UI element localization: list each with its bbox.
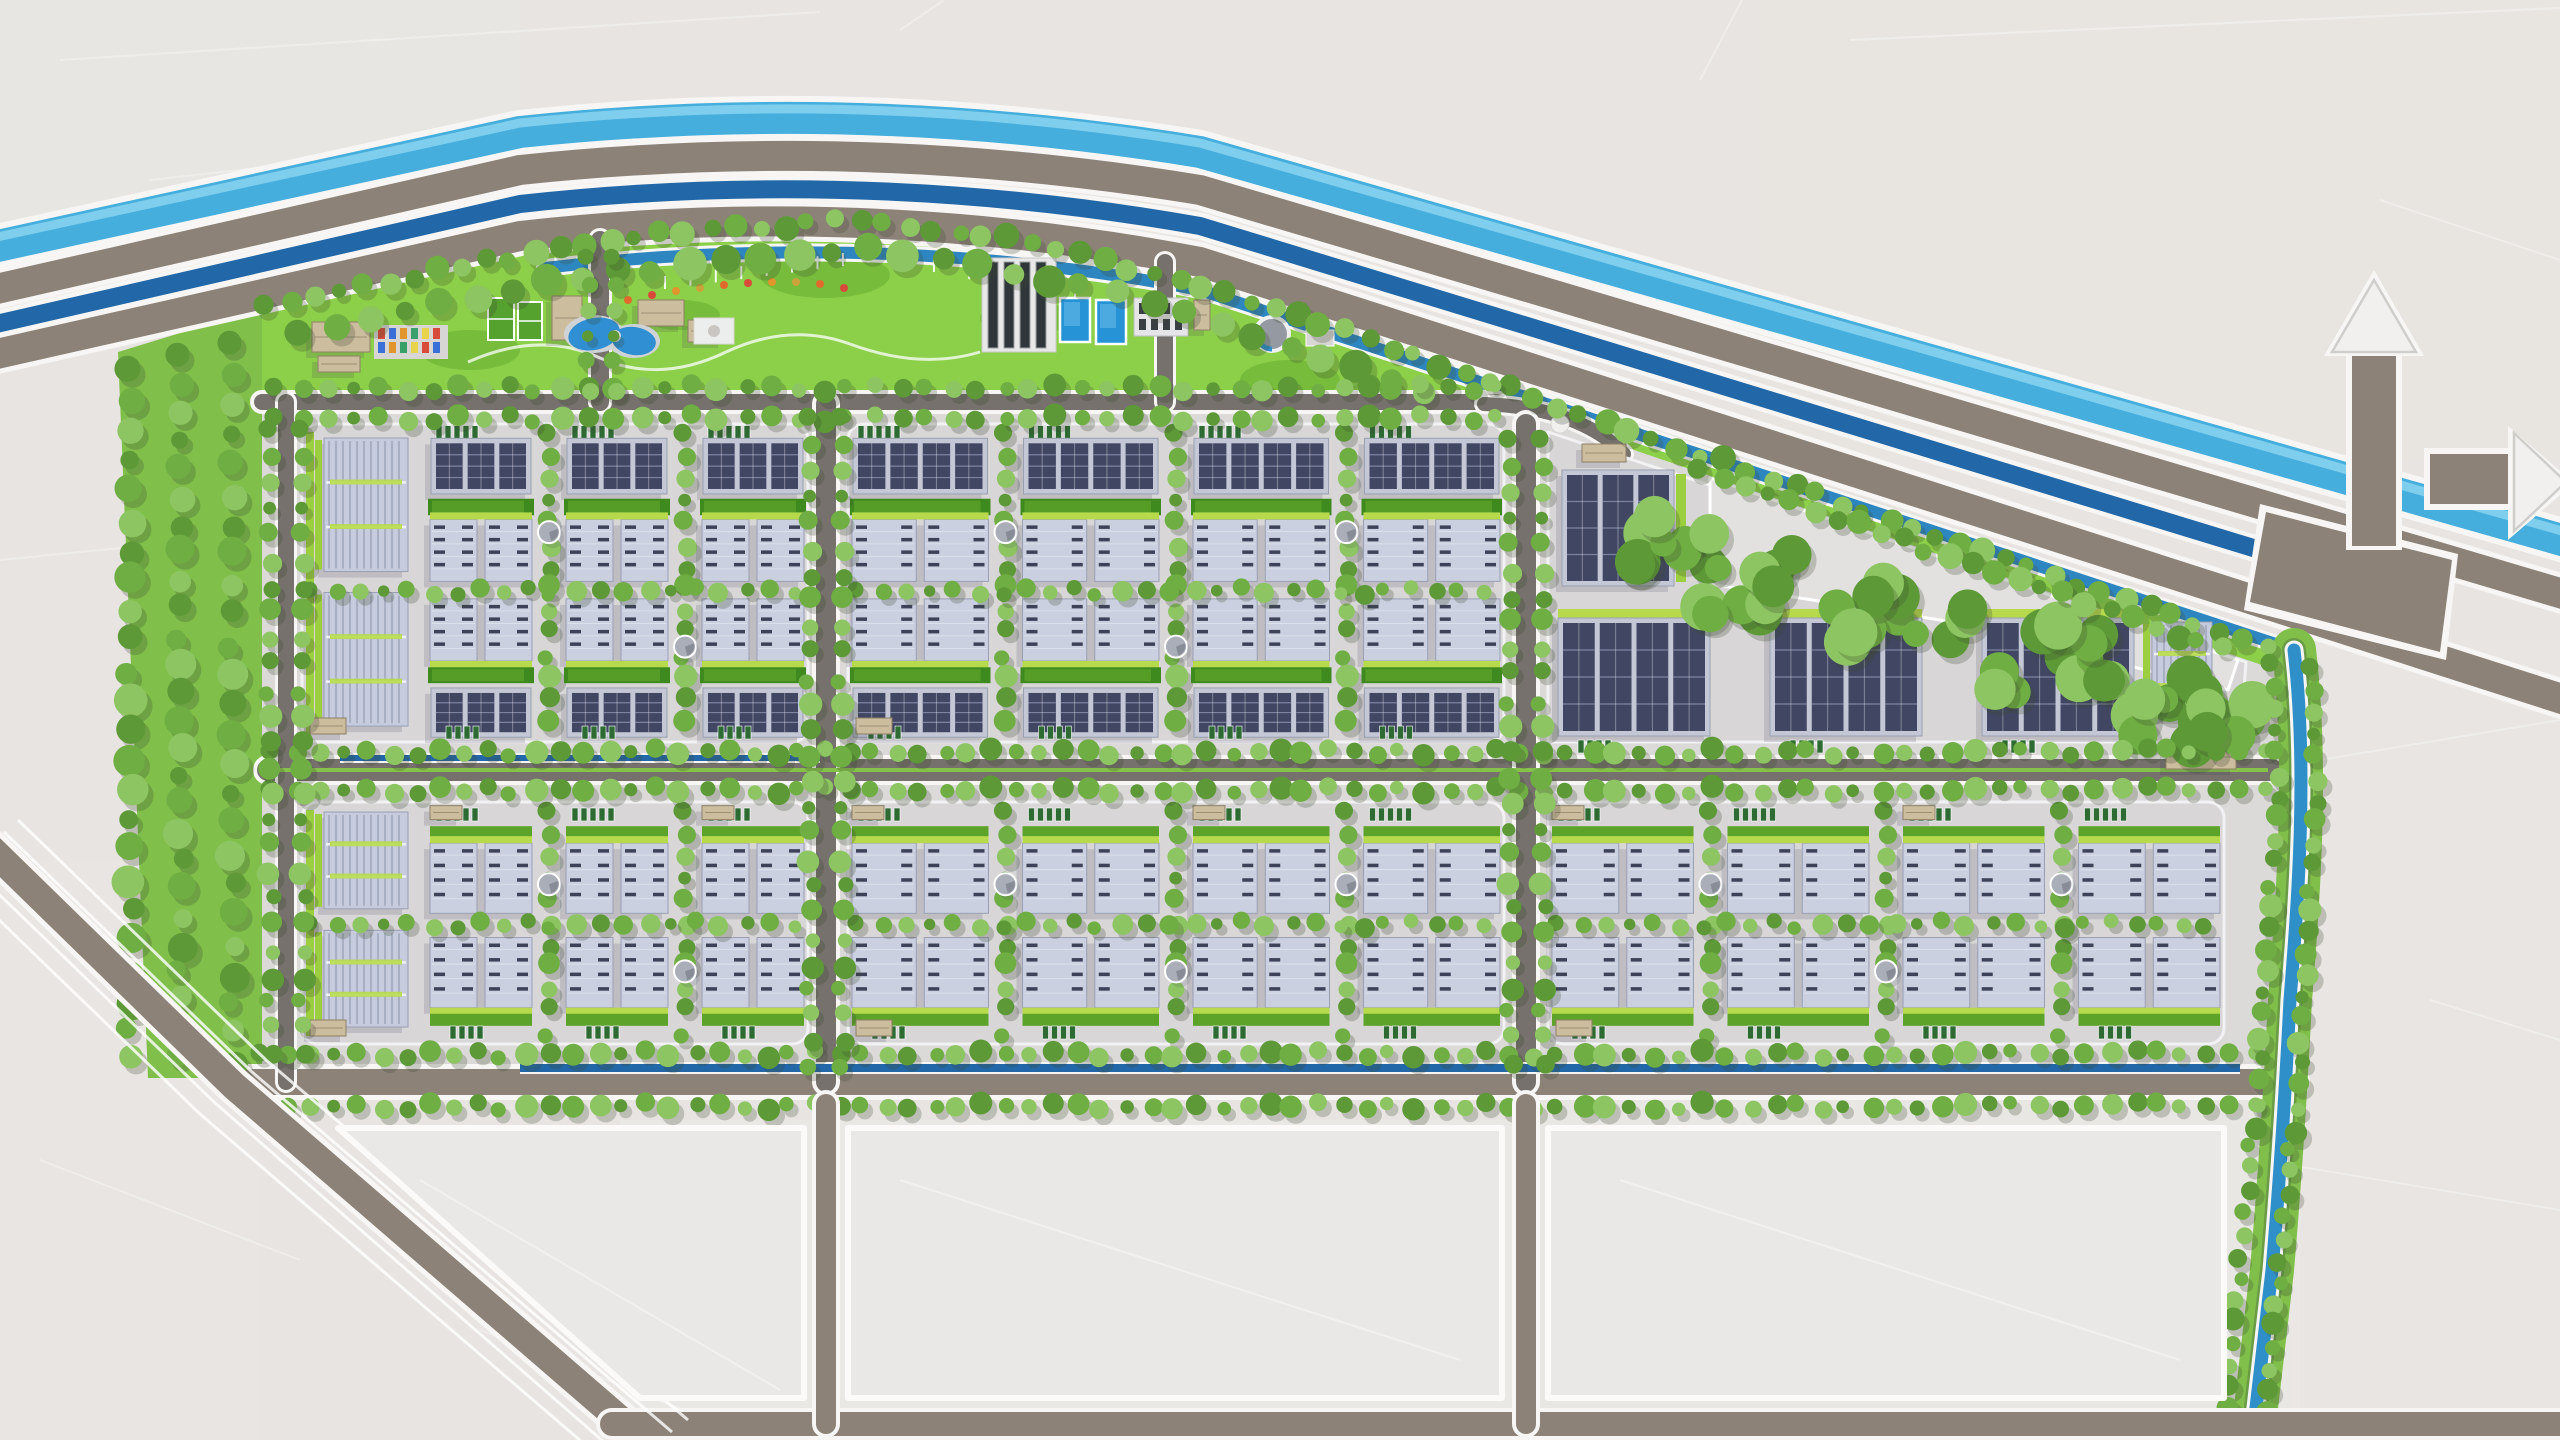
lawn-cap — [1364, 512, 1501, 519]
parked-car — [422, 328, 429, 339]
office-building — [850, 1020, 892, 1042]
ready-built-workshop-striped — [315, 593, 408, 733]
warehouse-light-roof-pair — [1187, 599, 1330, 668]
parked-car — [411, 342, 418, 353]
parked-car — [433, 342, 440, 353]
truck-parking-row — [572, 808, 614, 821]
lawn-cap — [852, 512, 989, 519]
lawn-cap — [1023, 512, 1160, 519]
office-building — [1550, 1020, 1592, 1042]
lawn-cap — [852, 1008, 989, 1015]
parked-car — [389, 342, 396, 353]
ready-built-workshop-striped — [315, 930, 408, 1033]
warehouse-light-roof-pair — [696, 938, 804, 1015]
playground-equipment — [720, 281, 728, 289]
lawn-cap — [566, 836, 668, 843]
lawn — [1364, 1014, 1501, 1026]
ready-built-workshop-striped — [315, 438, 408, 578]
playground-equipment — [648, 291, 656, 299]
lawn — [2079, 1014, 2221, 1026]
warehouse-light-roof-pair — [1017, 599, 1160, 668]
flagpole — [715, 269, 717, 282]
lawn — [702, 1014, 804, 1026]
warehouse-light-roof-pair — [424, 599, 532, 668]
lawn-cap — [702, 512, 804, 519]
east-exit-road — [2430, 454, 2514, 504]
transformer — [1139, 319, 1146, 330]
masterplan-canvas — [0, 0, 2560, 1440]
lawn-cap — [1903, 1008, 2045, 1015]
warehouse-solar-roof — [1018, 438, 1159, 500]
lawn-cap — [852, 661, 989, 668]
lawn-cap — [1728, 836, 1870, 843]
playground-equipment — [744, 279, 752, 287]
parked-car — [422, 342, 429, 353]
warehouse-light-roof-pair — [424, 938, 532, 1015]
lawn-cap — [1552, 1008, 1694, 1015]
warehouse-solar-roof — [1359, 438, 1500, 500]
parked-car — [389, 328, 396, 339]
warehouse-light-roof-pair — [696, 599, 804, 668]
lawn-cap — [1903, 836, 2045, 843]
parked-car — [378, 342, 385, 353]
lawn-cap — [1552, 836, 1694, 843]
warehouse-light-roof-pair — [1017, 938, 1160, 1015]
lawn — [1903, 1014, 2045, 1026]
lawn-cap — [1023, 661, 1160, 668]
lawn-cap — [430, 836, 532, 843]
warehouse-light-roof-pair — [1897, 938, 2045, 1015]
lawn-cap — [1364, 836, 1501, 843]
block-a1 — [301, 424, 808, 744]
lawn-cap — [2079, 836, 2221, 843]
warehouse-light-roof-pair — [560, 599, 668, 668]
block-c2 — [1546, 802, 2224, 1050]
warehouse-light-roof-pair — [2073, 938, 2221, 1015]
warehouse-solar-roof — [1188, 438, 1329, 500]
playground-equipment — [792, 278, 800, 286]
lawn-cap — [430, 1008, 532, 1015]
lawn-cap — [852, 836, 989, 843]
lawn-cap — [1193, 836, 1330, 843]
warehouse-light-roof-pair — [1722, 938, 1870, 1015]
lawn-cap — [1193, 1008, 1330, 1015]
lawn-cap — [2079, 1008, 2221, 1015]
warehouse-solar-roof — [847, 438, 988, 500]
warehouse-solar-roof — [425, 438, 531, 500]
lawn — [430, 1014, 532, 1026]
warehouse-solar-roof — [697, 438, 803, 500]
lawn — [1728, 1014, 1870, 1026]
lawn-cap — [1023, 1008, 1160, 1015]
office-building — [312, 356, 360, 378]
masterplan-stage — [0, 0, 2560, 1440]
warehouse-light-roof-pair — [1546, 938, 1694, 1015]
lawn-cap — [566, 512, 668, 519]
playground-equipment — [840, 284, 848, 292]
lawn-cap — [1193, 512, 1330, 519]
lawn-cap — [1728, 1008, 1870, 1015]
playground-equipment — [816, 280, 824, 288]
warehouse-light-roof-pair — [846, 599, 989, 668]
parked-car — [400, 342, 407, 353]
future-parcel-2 — [848, 1128, 1502, 1398]
block-b1 — [846, 424, 1504, 744]
ready-built-workshop-striped — [315, 812, 408, 915]
playground-equipment — [672, 287, 680, 295]
lawn-cap — [1364, 661, 1501, 668]
lawn-cap — [1023, 836, 1160, 843]
factory-south-row-1 — [1552, 618, 1710, 742]
field-patch — [2290, 640, 2560, 1440]
lawn-cap — [702, 836, 804, 843]
lawn — [566, 1014, 668, 1026]
lawn-cap — [430, 512, 532, 519]
lawn-cap — [566, 1008, 668, 1015]
warehouse-light-roof-pair — [846, 938, 989, 1015]
lawn-cap — [1193, 661, 1330, 668]
parked-car — [433, 328, 440, 339]
parked-car — [400, 328, 407, 339]
warehouse-solar-roof — [561, 438, 667, 500]
lawn-strip — [315, 814, 322, 907]
lawn-cap — [702, 1008, 804, 1015]
north-exit-road — [2352, 346, 2396, 546]
lawn-cap — [566, 661, 668, 668]
lawn — [1193, 1014, 1330, 1026]
parked-car — [411, 328, 418, 339]
future-parcel-3 — [1548, 1128, 2224, 1398]
lawn-cap — [702, 661, 804, 668]
block-a2 — [301, 802, 808, 1050]
lawn-cap — [1364, 1008, 1501, 1015]
block-b2 — [846, 802, 1504, 1050]
warehouse-light-roof-pair — [1187, 938, 1330, 1015]
lawn-cap — [430, 661, 532, 668]
warehouse-light-roof-pair — [1358, 599, 1501, 668]
warehouse-light-roof-pair — [560, 938, 668, 1015]
warehouse-light-roof-pair — [1358, 938, 1501, 1015]
monument — [708, 325, 720, 337]
office-building — [1576, 444, 1626, 468]
lawn — [1023, 1014, 1160, 1026]
